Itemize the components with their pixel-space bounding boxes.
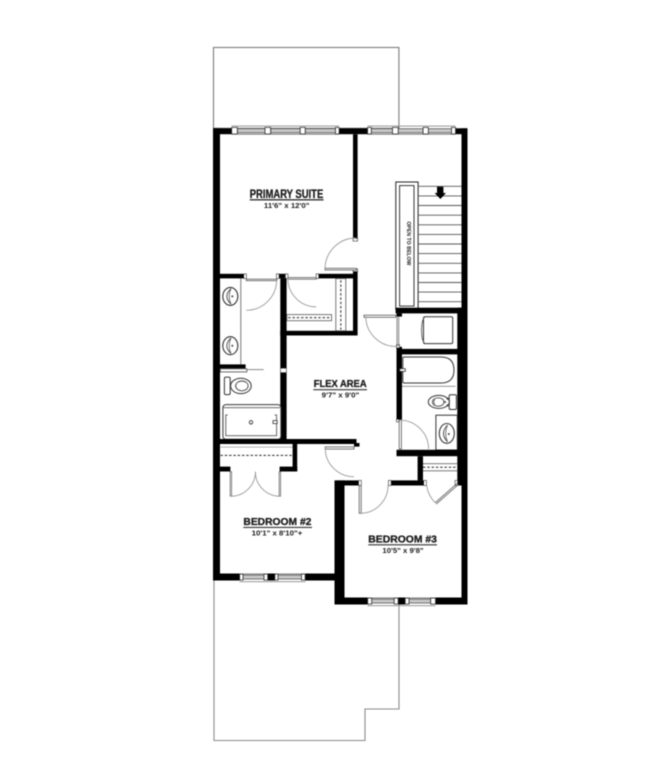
svg-text:11'6" x 12'0": 11'6" x 12'0" [264, 201, 310, 210]
svg-text:FLEX AREA: FLEX AREA [314, 379, 367, 390]
svg-text:10'1" x 8'10"+: 10'1" x 8'10"+ [252, 531, 303, 538]
svg-text:BEDROOM #3: BEDROOM #3 [368, 535, 437, 546]
svg-text:BEDROOM #2: BEDROOM #2 [243, 517, 311, 528]
svg-text:10'5" x 9'8": 10'5" x 9'8" [382, 548, 423, 555]
svg-text:OPEN TO BELOW: OPEN TO BELOW [405, 221, 411, 265]
svg-text:9'7" x 9'0": 9'7" x 9'0" [322, 392, 360, 399]
svg-text:PRIMARY SUITE: PRIMARY SUITE [250, 188, 324, 201]
